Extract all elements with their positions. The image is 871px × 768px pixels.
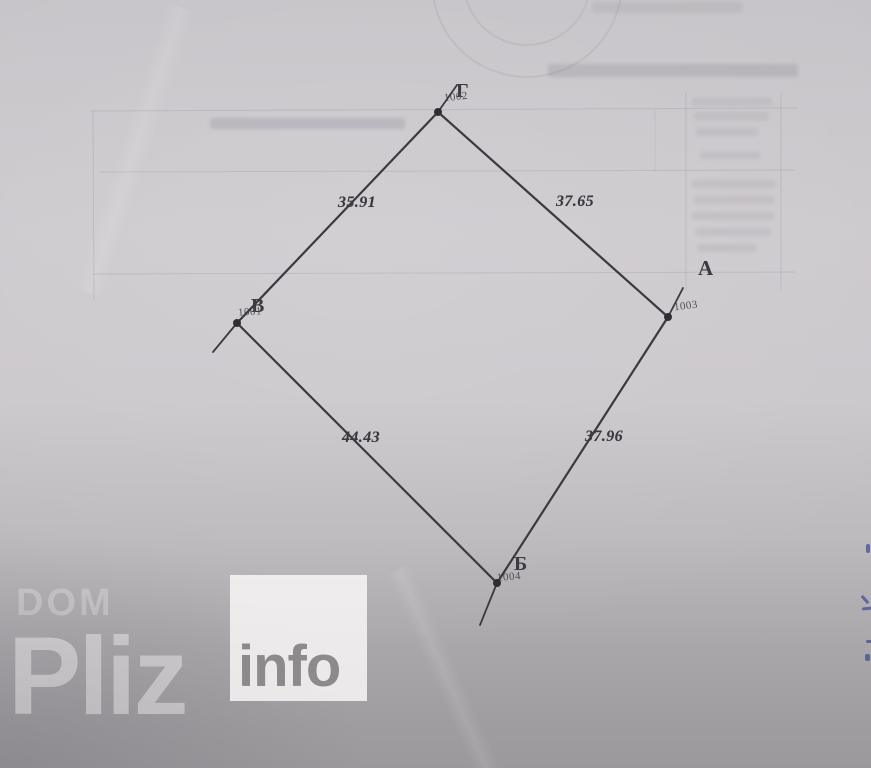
overshoot-at-b	[480, 583, 497, 625]
boundary-line-v-g	[237, 112, 438, 323]
paper-crease	[74, 3, 195, 298]
boundary-line-a-b	[497, 317, 668, 583]
pen-mark	[865, 654, 870, 661]
scanned-document-photo: Г А Б В 1002 1003 1004 1001 35.91 37.65 …	[0, 0, 871, 768]
vertex-dot-1003	[664, 313, 672, 321]
vertex-letter-a: А	[698, 258, 713, 279]
side-length-b-v: 44.43	[342, 430, 380, 446]
point-number-1002: 1002	[443, 91, 468, 104]
paper-crease	[386, 564, 499, 768]
pen-mark	[866, 544, 870, 553]
vertex-dot-1001	[233, 319, 241, 327]
bleed-through-text	[692, 98, 772, 106]
side-length-g-a: 37.65	[556, 194, 594, 210]
vertex-dot-1002	[434, 108, 442, 116]
watermark-info: info	[238, 638, 340, 696]
pen-mark	[866, 640, 871, 643]
pen-mark	[861, 595, 870, 604]
overshoot-at-v	[213, 323, 237, 352]
boundary-line-g-a	[438, 112, 668, 317]
bleed-through-text	[694, 196, 774, 204]
bleed-through-text	[210, 118, 405, 129]
point-number-1004: 1004	[497, 571, 522, 584]
bleed-through-text	[592, 2, 742, 13]
watermark-pliz: Pliz	[8, 622, 186, 732]
pen-mark	[862, 606, 871, 610]
side-length-a-b: 37.96	[585, 429, 623, 445]
bleed-through-text	[696, 128, 758, 136]
bleed-through-text	[692, 180, 776, 188]
bleed-through-text	[694, 112, 769, 120]
boundary-line-b-v	[237, 323, 497, 583]
bleed-through-text	[695, 228, 771, 236]
bleed-through-text	[692, 212, 774, 220]
bleed-through-text	[700, 152, 760, 159]
bleed-through-text	[548, 64, 798, 77]
point-number-1003: 1003	[673, 300, 698, 314]
point-number-1001: 1001	[238, 306, 263, 319]
bleed-through-text	[697, 244, 757, 252]
side-length-v-g: 35.91	[338, 195, 376, 211]
